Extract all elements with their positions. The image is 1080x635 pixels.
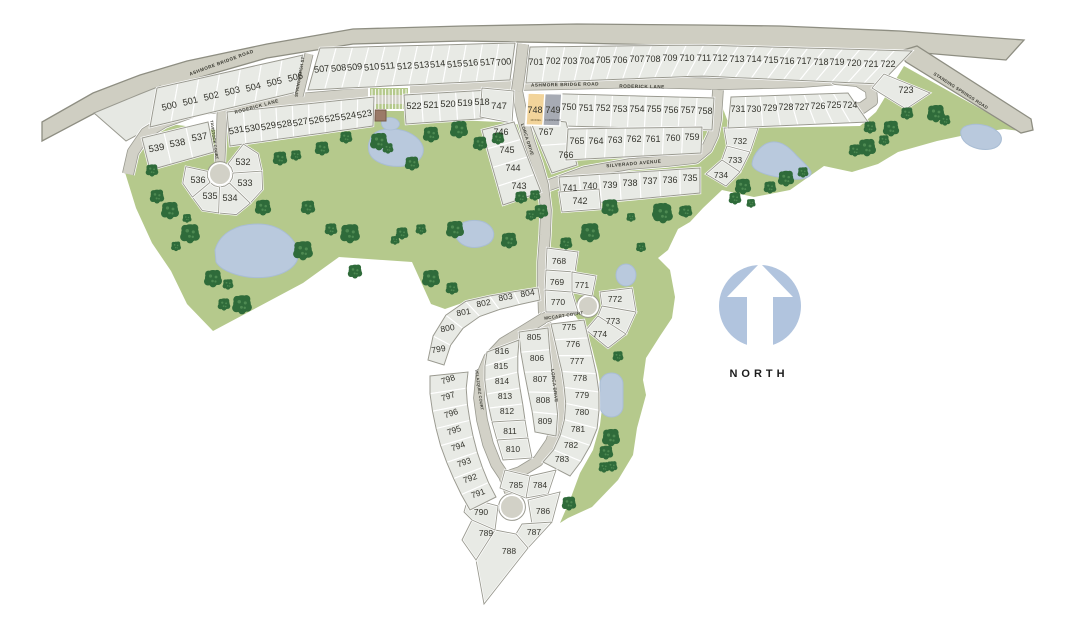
svg-text:750: 750: [561, 102, 576, 112]
svg-text:807: 807: [533, 374, 547, 384]
svg-text:770: 770: [551, 297, 565, 307]
svg-text:767: 767: [538, 127, 553, 137]
svg-text:707: 707: [629, 54, 644, 64]
svg-text:739: 739: [602, 180, 617, 190]
svg-text:MODEL: MODEL: [531, 118, 542, 122]
svg-text:521: 521: [423, 100, 438, 110]
svg-text:763: 763: [607, 135, 622, 145]
svg-text:768: 768: [552, 256, 566, 266]
svg-text:NORTH: NORTH: [729, 368, 788, 380]
svg-text:752: 752: [595, 103, 610, 113]
svg-text:519: 519: [457, 98, 472, 108]
svg-text:701: 701: [528, 57, 543, 67]
svg-text:744: 744: [505, 163, 520, 173]
svg-text:518: 518: [474, 97, 489, 107]
svg-text:728: 728: [779, 102, 794, 112]
svg-text:508: 508: [330, 62, 346, 74]
svg-text:737: 737: [642, 176, 657, 186]
svg-text:705: 705: [595, 55, 610, 65]
svg-text:520: 520: [440, 99, 455, 109]
svg-text:704: 704: [579, 56, 594, 66]
svg-text:781: 781: [571, 424, 585, 434]
svg-text:787: 787: [527, 527, 541, 537]
svg-text:522: 522: [406, 101, 421, 111]
svg-text:756: 756: [663, 105, 678, 115]
svg-text:775: 775: [562, 322, 576, 332]
svg-text:805: 805: [527, 332, 541, 342]
svg-text:808: 808: [536, 395, 550, 405]
svg-text:517: 517: [479, 56, 495, 68]
svg-text:751: 751: [578, 103, 593, 113]
svg-text:749: 749: [545, 105, 560, 115]
svg-text:721: 721: [863, 59, 878, 69]
svg-text:815: 815: [494, 361, 508, 371]
svg-text:740: 740: [582, 181, 597, 191]
svg-text:709: 709: [662, 53, 677, 63]
svg-text:725: 725: [827, 100, 842, 110]
svg-text:535: 535: [202, 191, 217, 201]
svg-text:806: 806: [530, 353, 544, 363]
svg-text:708: 708: [645, 54, 660, 64]
svg-text:783: 783: [555, 454, 569, 464]
svg-text:703: 703: [562, 56, 577, 66]
svg-text:757: 757: [680, 105, 695, 115]
svg-text:720: 720: [846, 58, 861, 68]
svg-text:510: 510: [363, 61, 379, 73]
svg-text:700: 700: [495, 56, 511, 68]
svg-text:716: 716: [779, 56, 794, 66]
svg-text:777: 777: [570, 356, 584, 366]
svg-text:766: 766: [558, 150, 573, 160]
svg-text:509: 509: [346, 61, 362, 73]
svg-text:715: 715: [763, 55, 778, 65]
svg-text:784: 784: [533, 480, 547, 490]
svg-text:511: 511: [380, 60, 396, 72]
svg-text:702: 702: [545, 56, 560, 66]
svg-text:788: 788: [502, 546, 516, 556]
svg-text:729: 729: [763, 103, 778, 113]
svg-text:730: 730: [747, 104, 762, 114]
svg-text:731: 731: [731, 104, 746, 114]
svg-text:776: 776: [566, 339, 580, 349]
svg-text:714: 714: [746, 54, 761, 64]
svg-text:515: 515: [446, 58, 462, 70]
svg-text:532: 532: [235, 157, 250, 167]
svg-text:814: 814: [495, 376, 509, 386]
svg-text:536: 536: [190, 175, 205, 185]
svg-text:782: 782: [564, 440, 578, 450]
svg-text:753: 753: [612, 104, 627, 114]
svg-text:736: 736: [662, 175, 677, 185]
svg-text:738: 738: [622, 178, 637, 188]
svg-text:760: 760: [665, 133, 680, 143]
svg-text:735: 735: [682, 173, 697, 183]
svg-text:811: 811: [503, 426, 517, 436]
svg-text:758: 758: [697, 106, 712, 116]
svg-text:790: 790: [474, 507, 488, 517]
svg-text:706: 706: [612, 55, 627, 65]
svg-text:719: 719: [829, 57, 844, 67]
svg-text:816: 816: [495, 346, 509, 356]
svg-text:727: 727: [795, 102, 810, 112]
svg-text:747: 747: [491, 101, 507, 112]
svg-text:786: 786: [536, 506, 550, 516]
svg-text:733: 733: [728, 155, 742, 165]
svg-text:762: 762: [626, 134, 641, 144]
svg-text:759: 759: [684, 132, 699, 142]
svg-text:711: 711: [697, 53, 711, 63]
svg-text:785: 785: [509, 480, 523, 490]
svg-text:810: 810: [506, 444, 520, 454]
svg-text:778: 778: [573, 373, 587, 383]
svg-text:FURNISHED: FURNISHED: [545, 118, 560, 122]
svg-text:755: 755: [646, 104, 661, 114]
svg-text:748: 748: [527, 105, 542, 115]
svg-text:742: 742: [572, 196, 587, 206]
svg-text:772: 772: [608, 294, 622, 304]
svg-text:769: 769: [550, 277, 564, 287]
svg-text:516: 516: [462, 57, 478, 69]
svg-text:773: 773: [606, 316, 620, 326]
svg-text:779: 779: [575, 390, 589, 400]
svg-text:533: 533: [237, 178, 252, 188]
svg-text:789: 789: [479, 528, 493, 538]
svg-text:771: 771: [575, 280, 589, 290]
svg-text:809: 809: [538, 416, 552, 426]
svg-text:514: 514: [429, 58, 445, 70]
svg-text:726: 726: [811, 101, 826, 111]
svg-text:512: 512: [396, 60, 412, 72]
svg-text:722: 722: [880, 59, 895, 69]
svg-text:713: 713: [729, 54, 744, 64]
svg-text:754: 754: [629, 104, 644, 114]
svg-text:765: 765: [569, 136, 584, 146]
svg-text:745: 745: [499, 145, 514, 155]
svg-text:732: 732: [733, 136, 747, 146]
svg-text:513: 513: [413, 59, 429, 71]
svg-text:813: 813: [498, 391, 512, 401]
svg-text:812: 812: [500, 406, 514, 416]
svg-text:717: 717: [796, 56, 811, 66]
svg-text:741: 741: [562, 183, 577, 193]
svg-text:780: 780: [575, 407, 589, 417]
svg-text:734: 734: [714, 170, 728, 180]
svg-text:534: 534: [222, 193, 237, 203]
svg-text:723: 723: [898, 85, 913, 95]
svg-text:507: 507: [313, 63, 329, 75]
svg-text:746: 746: [493, 127, 508, 137]
svg-text:718: 718: [813, 57, 828, 67]
svg-text:774: 774: [593, 329, 607, 339]
svg-text:710: 710: [679, 53, 694, 63]
svg-text:RODERICK LANE: RODERICK LANE: [619, 84, 665, 90]
svg-text:743: 743: [511, 181, 526, 191]
svg-text:764: 764: [588, 136, 603, 146]
svg-text:724: 724: [843, 100, 858, 110]
svg-text:712: 712: [712, 53, 727, 63]
svg-text:761: 761: [645, 134, 660, 144]
